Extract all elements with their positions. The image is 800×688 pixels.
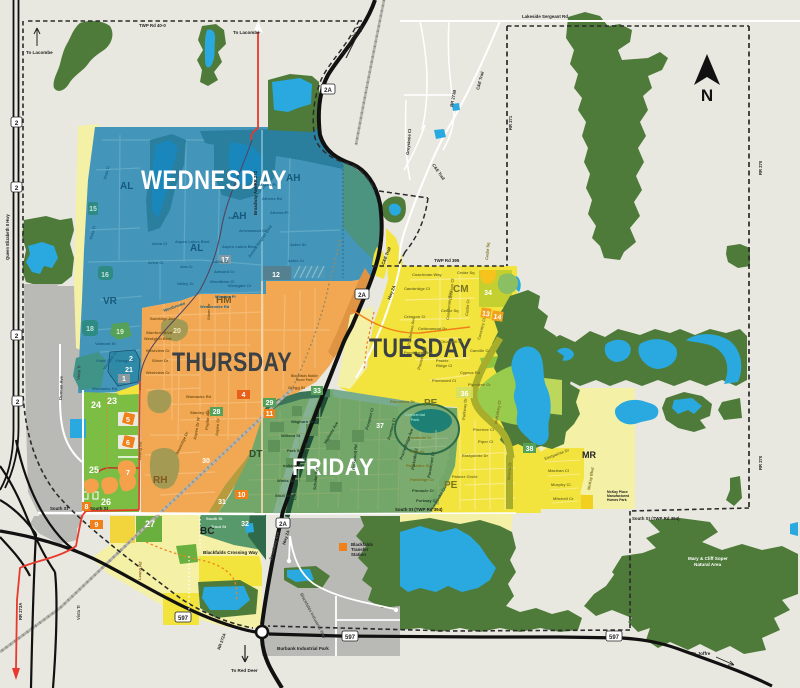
svg-text:Cambridge Cl: Cambridge Cl xyxy=(404,286,430,291)
svg-text:Duncan Ave: Duncan Ave xyxy=(58,375,64,400)
svg-text:RR 270: RR 270 xyxy=(758,160,763,175)
svg-text:Westview Cr: Westview Cr xyxy=(146,348,170,353)
svg-text:CM: CM xyxy=(453,284,469,295)
svg-text:Shull St: Shull St xyxy=(275,493,291,498)
svg-text:33: 33 xyxy=(313,388,321,395)
svg-text:VR: VR xyxy=(103,296,118,307)
svg-text:15: 15 xyxy=(89,206,97,213)
svg-text:Vintage Cl: Vintage Cl xyxy=(115,358,135,363)
svg-text:Womacks Rd: Womacks Rd xyxy=(186,394,212,399)
svg-text:Winston Pl: Winston Pl xyxy=(215,294,236,299)
svg-text:2A: 2A xyxy=(279,522,287,528)
svg-text:To Lacombe: To Lacombe xyxy=(233,30,260,35)
svg-text:Maclean Cl: Maclean Cl xyxy=(548,468,569,473)
svg-text:Athens Rd: Athens Rd xyxy=(262,196,283,201)
svg-text:597: 597 xyxy=(178,616,189,622)
svg-text:Mary & Cliff Soper: Mary & Cliff Soper xyxy=(688,556,728,561)
svg-text:Indiana St: Indiana St xyxy=(283,463,303,468)
svg-text:Cottonwood Dr: Cottonwood Dr xyxy=(418,326,447,331)
svg-text:Westview Cr: Westview Cr xyxy=(146,370,170,375)
svg-text:Ava Cr: Ava Cr xyxy=(180,264,193,269)
svg-text:Panorama Dr: Panorama Dr xyxy=(390,399,415,404)
svg-text:13: 13 xyxy=(481,310,490,318)
svg-text:DT: DT xyxy=(249,449,262,460)
svg-text:Broadway Ave/RR 272: Broadway Ave/RR 272 xyxy=(253,170,258,215)
svg-text:4: 4 xyxy=(242,392,246,399)
svg-text:THURSDAY: THURSDAY xyxy=(172,347,292,377)
svg-text:Stanford Blvd: Stanford Blvd xyxy=(146,330,173,335)
svg-text:Murphy Cl: Murphy Cl xyxy=(551,482,571,487)
svg-text:Gregg St: Gregg St xyxy=(288,385,306,390)
svg-text:PE: PE xyxy=(424,398,438,409)
svg-text:Palmer Circle: Palmer Circle xyxy=(452,474,478,479)
svg-text:2: 2 xyxy=(15,185,19,192)
svg-text:Cyprus Rd: Cyprus Rd xyxy=(460,370,481,375)
svg-text:12: 12 xyxy=(272,272,280,279)
svg-text:Pinnacle Cl: Pinnacle Cl xyxy=(412,488,434,493)
svg-text:Winks St: Winks St xyxy=(277,478,295,483)
svg-text:South St: South St xyxy=(50,506,69,511)
svg-text:Camille Cr: Camille Cr xyxy=(470,348,490,353)
svg-text:19: 19 xyxy=(116,329,124,336)
svg-text:Park St: Park St xyxy=(287,448,301,453)
svg-text:23: 23 xyxy=(107,396,117,406)
svg-text:7: 7 xyxy=(126,470,130,477)
svg-text:34: 34 xyxy=(484,290,492,297)
svg-text:AH: AH xyxy=(286,173,300,184)
svg-text:Womacks Rd: Womacks Rd xyxy=(92,386,118,391)
svg-text:Westglen Blvd: Westglen Blvd xyxy=(144,336,172,341)
svg-text:2: 2 xyxy=(16,399,20,406)
svg-text:27: 27 xyxy=(145,519,155,529)
svg-text:10: 10 xyxy=(238,492,246,499)
svg-text:South St: South St xyxy=(206,516,223,521)
svg-text:Mitchell Cr: Mitchell Cr xyxy=(553,496,574,501)
svg-text:Queen Elizabeth II Hwy: Queen Elizabeth II Hwy xyxy=(5,213,10,260)
svg-text:Piper Cl: Piper Cl xyxy=(478,439,493,444)
svg-text:RH: RH xyxy=(153,475,167,486)
svg-text:TWP Rd 40-0: TWP Rd 40-0 xyxy=(139,23,166,28)
svg-text:1: 1 xyxy=(122,376,126,383)
svg-text:Vista Tr: Vista Tr xyxy=(76,364,82,380)
svg-text:18: 18 xyxy=(86,326,94,333)
svg-text:Park: Park xyxy=(411,417,420,422)
svg-text:36: 36 xyxy=(461,391,469,398)
svg-text:20: 20 xyxy=(173,328,181,335)
svg-text:Churchill Pl: Churchill Pl xyxy=(440,339,462,344)
svg-text:N: N xyxy=(701,86,713,105)
svg-text:Ridge Cl: Ridge Cl xyxy=(436,363,452,368)
svg-text:WEDNESDAY: WEDNESDAY xyxy=(141,165,287,195)
svg-text:5: 5 xyxy=(126,417,130,424)
svg-text:Valmont St: Valmont St xyxy=(95,341,116,346)
svg-text:Cedar Sq: Cedar Sq xyxy=(457,270,475,275)
svg-text:Arlen Cl: Arlen Cl xyxy=(148,260,163,265)
svg-text:To Joffre: To Joffre xyxy=(691,651,711,656)
svg-text:597: 597 xyxy=(609,635,620,641)
svg-text:31: 31 xyxy=(218,499,226,506)
svg-text:Valley Cr: Valley Cr xyxy=(177,281,194,286)
svg-text:2: 2 xyxy=(15,120,19,127)
svg-text:Silver Dr: Silver Dr xyxy=(206,303,211,320)
svg-text:Westgate Cr: Westgate Cr xyxy=(228,283,252,288)
svg-text:MR: MR xyxy=(582,450,596,460)
svg-text:Home Park: Home Park xyxy=(296,378,313,382)
svg-text:Trout St: Trout St xyxy=(211,524,227,529)
svg-text:Pinetree Cl: Pinetree Cl xyxy=(473,427,494,432)
svg-text:Station: Station xyxy=(351,552,366,557)
svg-text:Eastpointe Dr: Eastpointe Dr xyxy=(462,453,488,458)
svg-text:38: 38 xyxy=(526,446,534,453)
svg-text:597: 597 xyxy=(345,635,356,641)
svg-text:Coachman Way: Coachman Way xyxy=(412,272,442,277)
svg-text:Ponderosa Ave: Ponderosa Ave xyxy=(404,350,434,355)
svg-text:2A: 2A xyxy=(358,293,366,299)
svg-text:Leung Rd: Leung Rd xyxy=(137,441,143,460)
svg-text:9: 9 xyxy=(95,522,99,529)
svg-text:8: 8 xyxy=(85,504,89,511)
svg-text:37: 37 xyxy=(376,423,384,430)
svg-text:25: 25 xyxy=(89,465,99,475)
svg-text:2: 2 xyxy=(15,333,19,340)
svg-text:AL: AL xyxy=(190,243,203,254)
svg-text:Vista Tr: Vista Tr xyxy=(76,605,81,620)
svg-text:Aspen Lakes Blvd: Aspen Lakes Blvd xyxy=(175,239,210,244)
svg-text:28: 28 xyxy=(213,409,221,416)
svg-text:Leung Rd: Leung Rd xyxy=(137,561,143,580)
svg-text:Waghorn St: Waghorn St xyxy=(291,419,314,424)
svg-text:Adina Cl: Adina Cl xyxy=(212,259,228,264)
svg-text:16: 16 xyxy=(101,272,109,279)
svg-text:Sunridge Ave: Sunridge Ave xyxy=(150,316,176,321)
svg-text:Burbank Industrial Park: Burbank Industrial Park xyxy=(277,646,329,651)
svg-text:South St: South St xyxy=(90,506,109,511)
svg-text:21: 21 xyxy=(125,367,133,374)
svg-text:Willson St: Willson St xyxy=(281,433,301,438)
svg-text:30: 30 xyxy=(202,458,210,465)
svg-text:29: 29 xyxy=(266,400,274,407)
svg-text:AL: AL xyxy=(120,181,133,192)
svg-text:Pinewood Cl: Pinewood Cl xyxy=(432,378,456,383)
svg-text:To Lacombe: To Lacombe xyxy=(26,50,53,55)
svg-text:Blackfalds Crossing Way: Blackfalds Crossing Way xyxy=(203,550,258,555)
svg-text:Anna Cl: Anna Cl xyxy=(152,241,167,246)
svg-text:Athens Pl: Athens Pl xyxy=(258,182,276,187)
svg-text:2A: 2A xyxy=(324,88,332,94)
svg-text:Silver Dr: Silver Dr xyxy=(152,358,169,363)
svg-text:Ash Cl: Ash Cl xyxy=(228,215,241,220)
svg-text:6: 6 xyxy=(126,440,130,447)
svg-text:32: 32 xyxy=(241,521,249,528)
svg-text:24: 24 xyxy=(91,400,101,410)
svg-text:South St (TWP Rd 394): South St (TWP Rd 394) xyxy=(395,507,443,512)
svg-text:14: 14 xyxy=(493,314,502,322)
svg-text:South St (TWP Rd 394): South St (TWP Rd 394) xyxy=(632,516,680,521)
svg-text:RR 270: RR 270 xyxy=(758,455,763,470)
svg-text:Lakeside Sergeant Rd: Lakeside Sergeant Rd xyxy=(522,14,568,19)
svg-text:Athena Pl: Athena Pl xyxy=(270,210,288,215)
svg-text:RR 273A: RR 273A xyxy=(18,603,23,620)
svg-text:Plumtree Cr: Plumtree Cr xyxy=(468,382,491,387)
svg-text:Aztec Cr: Aztec Cr xyxy=(288,258,305,263)
svg-text:Homes Park: Homes Park xyxy=(607,498,627,502)
svg-text:11: 11 xyxy=(266,411,274,418)
svg-text:TWP Rd 395: TWP Rd 395 xyxy=(434,258,460,263)
svg-text:Natural Area: Natural Area xyxy=(694,562,722,567)
svg-text:Westbrooke Rd: Westbrooke Rd xyxy=(200,304,230,309)
svg-text:RR 271: RR 271 xyxy=(508,115,513,130)
svg-text:Almond Cr: Almond Cr xyxy=(214,269,235,274)
svg-text:To Red Deer: To Red Deer xyxy=(231,668,258,673)
svg-text:Aztec St: Aztec St xyxy=(290,242,306,247)
